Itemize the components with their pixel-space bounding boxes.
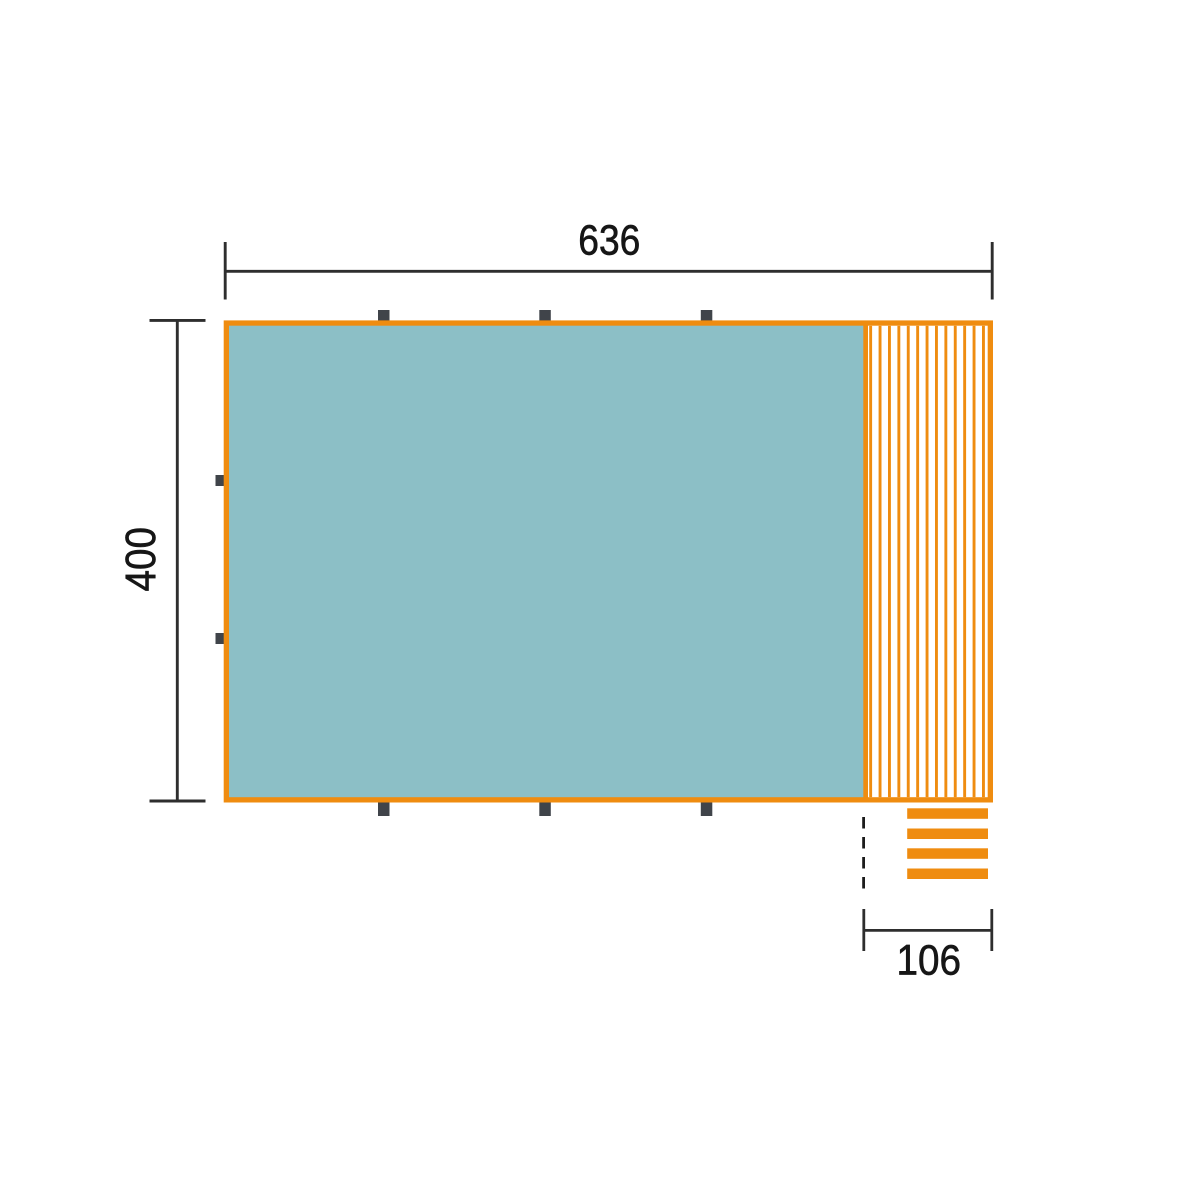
svg-text:106: 106 <box>897 937 962 985</box>
svg-text:400: 400 <box>117 527 165 592</box>
svg-text:636: 636 <box>578 217 640 265</box>
